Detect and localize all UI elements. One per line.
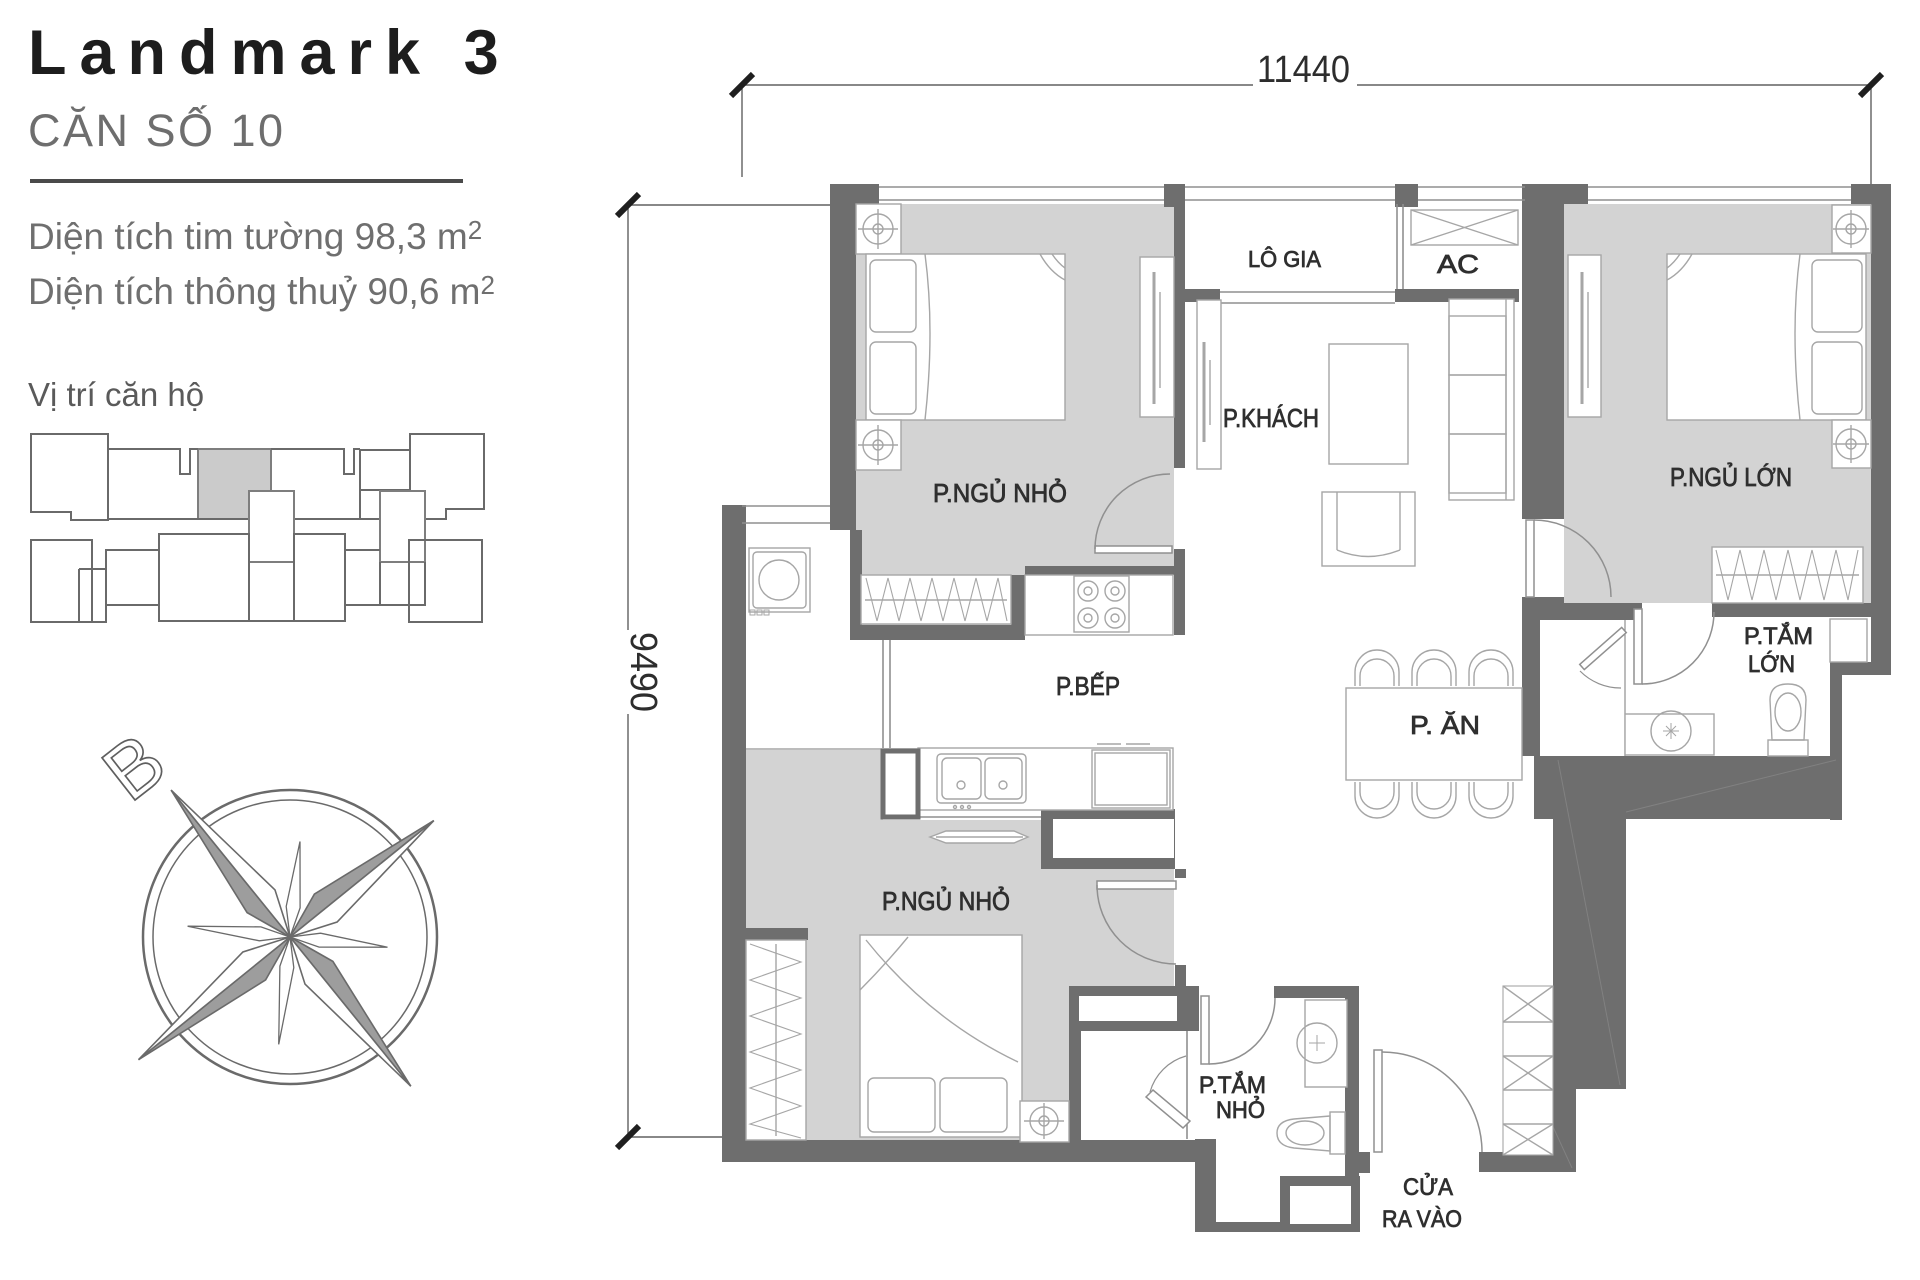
- svg-text:P. ĂN: P. ĂN: [1410, 710, 1480, 740]
- svg-text:CĂN SỐ 10: CĂN SỐ 10: [28, 105, 286, 156]
- svg-text:CỬA: CỬA: [1403, 1172, 1453, 1201]
- svg-text:NHỎ: NHỎ: [1216, 1095, 1265, 1124]
- svg-text:RA VÀO: RA VÀO: [1382, 1206, 1462, 1233]
- svg-text:LỚN: LỚN: [1748, 651, 1795, 678]
- svg-text:P.BẾP: P.BẾP: [1056, 671, 1120, 701]
- svg-text:Diện tích thông thuỷ 90,6 m2: Diện tích thông thuỷ 90,6 m2: [28, 270, 495, 312]
- svg-text:AC: AC: [1437, 249, 1479, 279]
- svg-text:P.NGỦ NHỎ: P.NGỦ NHỎ: [882, 885, 1010, 916]
- svg-text:Vị trí căn hộ: Vị trí căn hộ: [28, 376, 204, 413]
- svg-text:P.TẮM: P.TẮM: [1199, 1071, 1266, 1099]
- svg-text:11440: 11440: [1257, 49, 1350, 91]
- svg-text:P.NGỦ LỚN: P.NGỦ LỚN: [1670, 461, 1792, 492]
- svg-text:Landmark 3: Landmark 3: [28, 18, 512, 88]
- svg-text:P.KHÁCH: P.KHÁCH: [1223, 403, 1319, 433]
- svg-text:Diện tích tim tường 98,3 m2: Diện tích tim tường 98,3 m2: [28, 215, 482, 257]
- svg-text:9490: 9490: [622, 632, 664, 712]
- svg-text:P.TẮM: P.TẮM: [1744, 622, 1813, 650]
- svg-text:LÔ GIA: LÔ GIA: [1248, 245, 1322, 272]
- svg-text:P.NGỦ NHỎ: P.NGỦ NHỎ: [933, 477, 1067, 508]
